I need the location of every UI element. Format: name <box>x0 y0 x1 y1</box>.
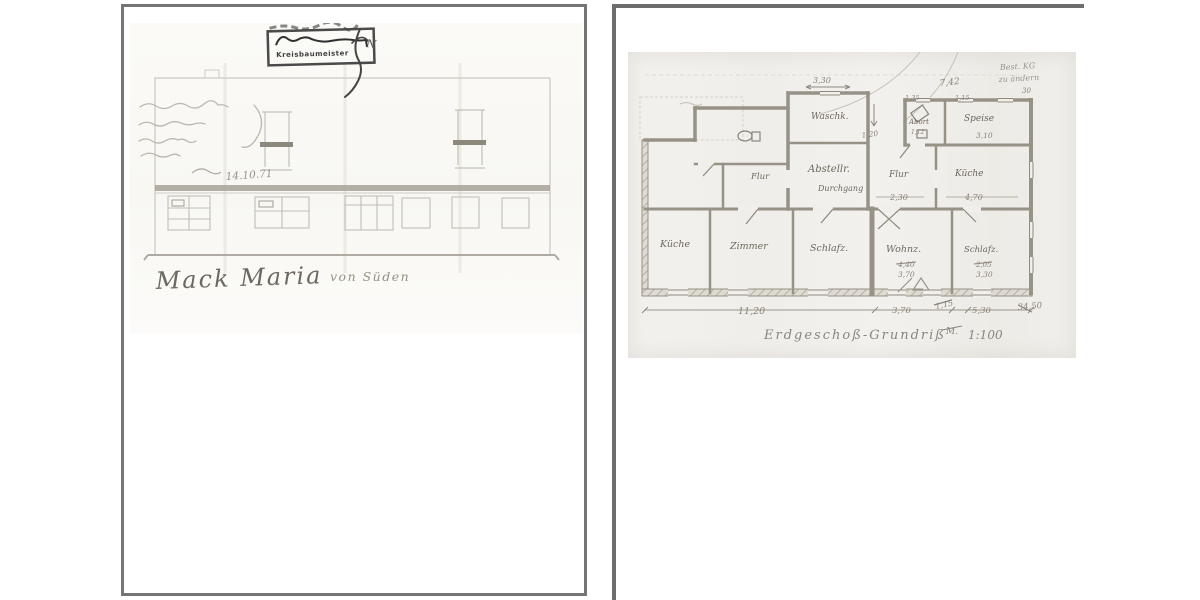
date-note: 14.10.71 <box>192 168 273 183</box>
dim-corner-right: 30 <box>1022 87 1031 95</box>
tiny-illegible-label <box>680 103 702 106</box>
stamp-label: Kreisbaumeister <box>276 49 349 59</box>
label-schlafz-mid: Schlafz. <box>810 243 848 254</box>
corner-note: Best. KG zu ändern <box>997 61 1040 84</box>
window-2 <box>255 197 309 228</box>
dim-bottom-5-group: 34,50 <box>1017 301 1043 313</box>
label-schlafz-right: Schlafz. <box>964 245 998 255</box>
window-6 <box>502 198 529 228</box>
dim-abort: 1,12 <box>911 129 925 136</box>
label-wohnz: Wohnz. <box>886 244 921 255</box>
ground-line <box>144 255 559 260</box>
label-kueche-right: Küche <box>954 169 984 179</box>
right-scan-paper: Waschk. Abort Speise Flur Abstellr. Durc… <box>628 52 1076 358</box>
waschk-width-arrow <box>806 85 850 89</box>
window-5 <box>452 197 479 228</box>
left-scan-page: 14.10.71 Kreisbaumeister N Mack Maria vo… <box>121 4 587 596</box>
dim-wohnz-group: 4,40 3,70 <box>896 260 916 279</box>
window-3 <box>345 196 393 230</box>
elevation-outline <box>155 70 550 255</box>
handwritten-note-illegible <box>139 101 262 157</box>
label-kueche-left: Küche <box>659 239 690 250</box>
window-1 <box>168 196 210 230</box>
left-scan-paper: 14.10.71 Kreisbaumeister N Mack Maria vo… <box>130 23 582 333</box>
label-waschk: Waschk. <box>811 112 849 122</box>
label-abort: Abort <box>908 118 929 126</box>
plan-title: Erdgeschoß-Grundriß M. 1:100 <box>763 326 1003 343</box>
ground-floor-windows <box>168 196 529 230</box>
dim-block-right: 1,15 <box>955 94 969 102</box>
dim-speise: 3,10 <box>976 131 993 140</box>
right-scan-page: Waschk. Abort Speise Flur Abstellr. Durc… <box>612 4 1084 600</box>
left-outer-wall <box>642 140 648 289</box>
floorplan-drawing: Waschk. Abort Speise Flur Abstellr. Durc… <box>628 52 1076 358</box>
dim-block-top: 7,42 <box>939 77 960 89</box>
dim-kueche: 4,70 <box>964 193 983 202</box>
label-speise: Speise <box>964 114 994 124</box>
dim-wohnz-b: 3,70 <box>898 270 915 279</box>
dim-waschk-top: 3,30 <box>813 76 831 85</box>
vert-arrow <box>871 104 877 126</box>
corner-note-line2: zu ändern <box>997 73 1039 84</box>
dim-bottom-2: 3,70 <box>892 306 912 316</box>
floor-band <box>155 185 550 193</box>
dim-schlafz-group: 2,05 3,30 <box>974 261 993 279</box>
label-durchgang: Durchgang <box>817 184 863 193</box>
dim-bottom-4: 5,30 <box>972 306 992 316</box>
date-note-text: 14.10.71 <box>225 168 272 183</box>
upper-window-detail-right <box>453 110 486 168</box>
plan-title-text: Erdgeschoß-Grundriß <box>763 328 946 343</box>
label-flur-right: Flur <box>888 170 909 180</box>
dim-wohnz-a: 4,40 <box>897 260 915 269</box>
dim-bottom-3-group: 1,15 <box>934 298 954 311</box>
chimney <box>205 70 219 78</box>
owner-name-caption: Mack Maria <box>154 261 323 295</box>
label-zimmer: Zimmer <box>729 241 769 252</box>
dim-block-left: 1,35 <box>905 94 919 102</box>
label-flur-left: Flur <box>750 172 770 182</box>
view-caption: von Süden <box>330 269 410 284</box>
plan-title-scale: 1:100 <box>968 328 1003 342</box>
dim-schlafz-b: 3,30 <box>976 270 993 279</box>
dim-flur: 2,30 <box>889 193 908 202</box>
corner-note-line1: Best. KG <box>999 61 1036 72</box>
label-abstellr: Abstellr. <box>807 164 850 175</box>
north-mark: N <box>365 37 378 51</box>
elevation-drawing: 14.10.71 Kreisbaumeister N Mack Maria vo… <box>130 23 582 333</box>
window-4 <box>402 198 430 228</box>
upper-window-detail-left <box>260 112 293 170</box>
dim-bottom-1: 11,20 <box>738 306 765 317</box>
dim-vert: 1,20 <box>861 129 879 140</box>
